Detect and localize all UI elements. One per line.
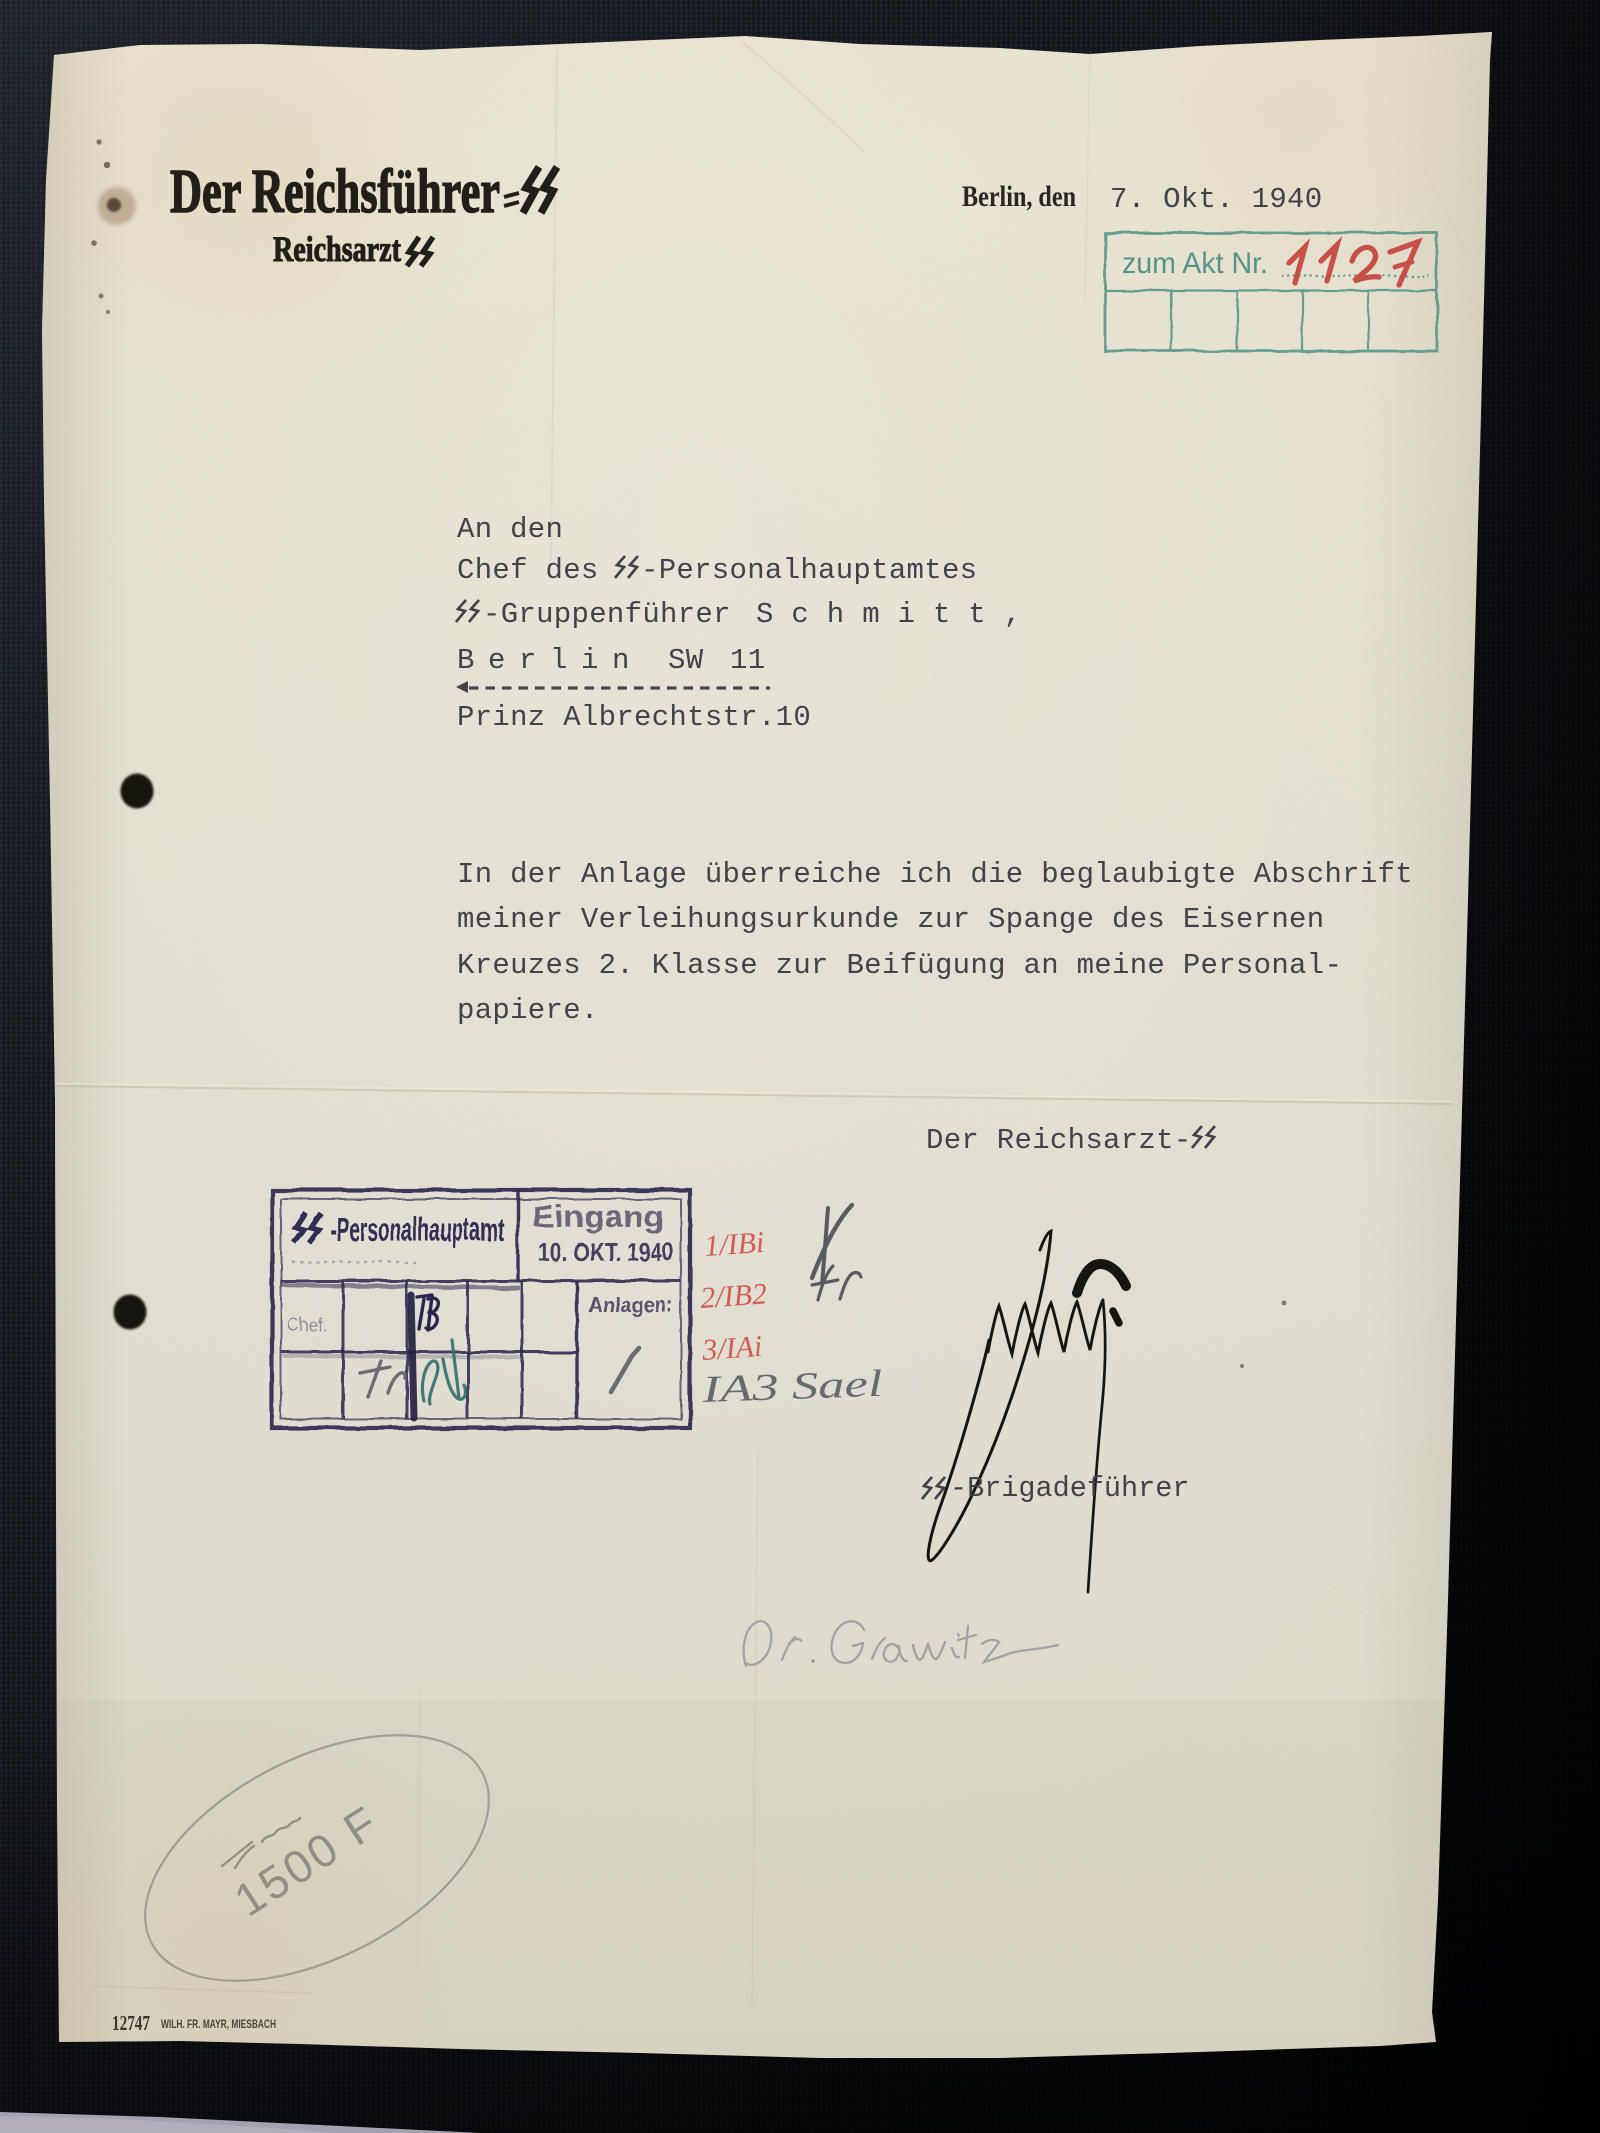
svg-text:SW: SW (668, 644, 704, 677)
svg-text:Chef des: Chef des (457, 554, 599, 587)
svg-text:2/IB2: 2/IB2 (699, 1277, 768, 1315)
svg-text:12747: 12747 (112, 2011, 150, 2035)
svg-text:Eingang: Eingang (532, 1199, 664, 1234)
svg-text:1/IBi: 1/IBi (703, 1226, 765, 1263)
svg-text:WILH. FR. MAYR, MIESBACH: WILH. FR. MAYR, MIESBACH (161, 2017, 276, 2031)
svg-text:Der Reichsarzt-: Der Reichsarzt- (926, 1124, 1192, 1157)
svg-text:Kreuzes 2. Klasse zur Beifügun: Kreuzes 2. Klasse zur Beifügung an meine… (457, 949, 1342, 982)
svg-text:Prinz Albrechtstr.10: Prinz Albrechtstr.10 (457, 701, 811, 734)
svg-text:S c h m i t t ,: S c h m i t t , (756, 598, 1022, 631)
svg-text:zum Akt Nr.: zum Akt Nr. (1122, 247, 1268, 280)
svg-text:3/IAi: 3/IAi (700, 1330, 763, 1367)
svg-text:e: e (488, 644, 506, 677)
svg-text:Berlin, den: Berlin, den (962, 180, 1076, 213)
svg-text:r: r (519, 644, 537, 677)
svg-text:-Gruppenführer: -Gruppenführer (483, 598, 731, 631)
svg-text:Reichsarzt: Reichsarzt (273, 229, 401, 269)
svg-text:-Brigadeführer: -Brigadeführer (950, 1472, 1189, 1505)
svg-text:Chef.: Chef. (287, 1315, 327, 1335)
svg-text:-Personalhauptamtes: -Personalhauptamtes (641, 554, 977, 587)
svg-text:Der Reichsführer: Der Reichsführer (170, 158, 500, 226)
svg-text:10. OKT. 1940: 10. OKT. 1940 (538, 1237, 674, 1267)
svg-text:11: 11 (730, 644, 765, 677)
svg-text:l: l (550, 644, 568, 677)
svg-text:meiner Verleihungsurkunde zur: meiner Verleihungsurkunde zur Spange des… (457, 903, 1324, 936)
svg-text:Anlagen:: Anlagen: (588, 1292, 673, 1317)
svg-text:n: n (612, 644, 630, 677)
svg-text:7. Okt. 1940: 7. Okt. 1940 (1110, 183, 1322, 216)
svg-text:In der Anlage überreiche ich d: In der Anlage überreiche ich die beglaub… (457, 858, 1413, 891)
svg-text:i: i (581, 644, 599, 677)
svg-text:B: B (457, 644, 475, 677)
svg-text:-Personalhauptamt: -Personalhauptamt (330, 1211, 504, 1249)
svg-text:An den: An den (457, 513, 563, 546)
svg-text:IA3 Sael: IA3 Sael (700, 1363, 883, 1411)
svg-text:papiere.: papiere. (457, 994, 599, 1027)
